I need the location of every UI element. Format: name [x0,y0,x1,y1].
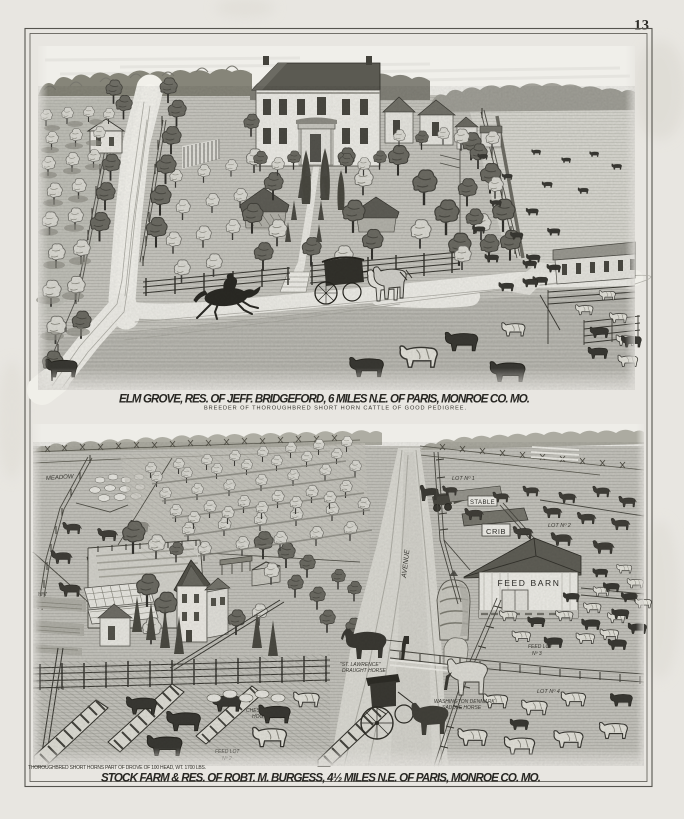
svg-text:BREEDER OF THOROUGHBRED SHORT: BREEDER OF THOROUGHBRED SHORT HORN CATTL… [204,406,466,412]
svg-text:THOROUGHBRED SHORT HORNS PART: THOROUGHBRED SHORT HORNS PART OF DROVE O… [28,765,206,771]
svg-text:ELM GROVE, RES. OF JEFF. BRIDG: ELM GROVE, RES. OF JEFF. BRIDGEFORD, 6 M… [119,394,530,406]
svg-text:13: 13 [634,18,650,34]
svg-text:STOCK FARM & RES. OF ROBT. M.: STOCK FARM & RES. OF ROBT. M. BURGESS, 4… [101,773,541,785]
